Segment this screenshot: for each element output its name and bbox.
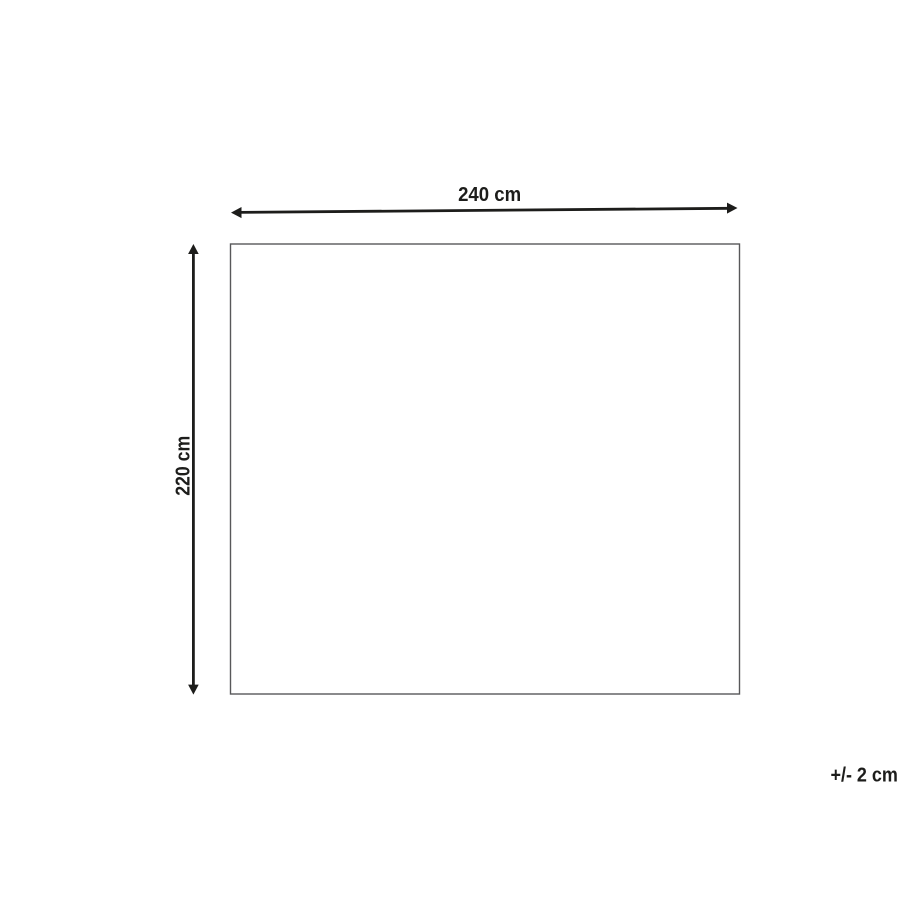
svg-text:+/- 2 cm: +/- 2 cm — [830, 765, 898, 787]
svg-text:220 cm: 220 cm — [172, 436, 194, 496]
svg-text:240 cm: 240 cm — [458, 184, 521, 206]
